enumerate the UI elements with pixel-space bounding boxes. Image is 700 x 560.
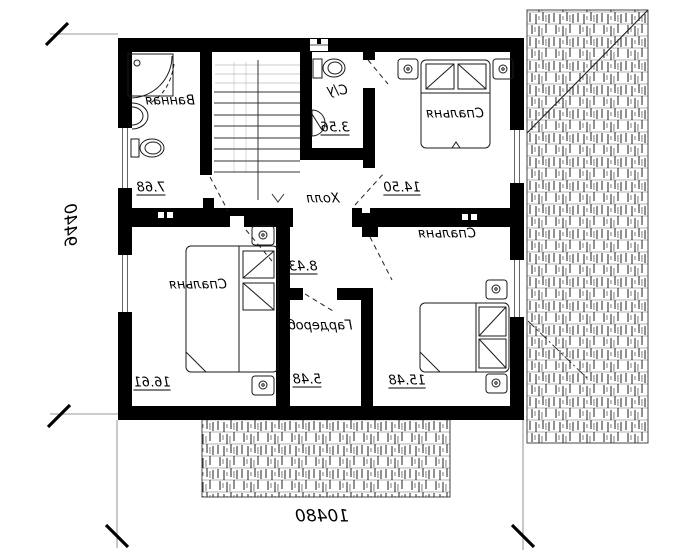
- window-wc-small: [310, 39, 328, 51]
- dimension-vertical: 9440: [61, 203, 78, 246]
- floor-plan-drawing: [0, 0, 700, 560]
- dimension-tick: [48, 405, 70, 427]
- room-area-bedroom-right: 15.48: [388, 375, 425, 388]
- double-bed: [421, 60, 490, 148]
- double-bed: [420, 303, 509, 372]
- window-bedroom-right: [510, 260, 524, 317]
- door-swing-bedroom-top: [355, 172, 385, 205]
- toilet: [131, 139, 164, 157]
- nightstand: [252, 376, 274, 395]
- window-bedroom-top: [510, 130, 524, 183]
- room-area-wardrobe: 5.48: [293, 374, 322, 387]
- double-bed: [186, 246, 278, 372]
- room-area-hall: 8.43: [289, 261, 318, 274]
- room-label-hall: Холл: [306, 193, 339, 206]
- door-notch-bedroom-top: [362, 208, 370, 213]
- door-swing-bedroom-right: [370, 237, 392, 280]
- nightstand: [398, 59, 418, 79]
- windows: [118, 39, 524, 317]
- room-area-bedroom-top: 14.50: [383, 182, 420, 195]
- bed-bedroom-top: [398, 59, 513, 148]
- window-bedroom-left: [118, 255, 132, 312]
- door-swing-wardrobe: [305, 294, 333, 311]
- stair-direction-arrow: [272, 194, 284, 202]
- wall-vent-marker: [462, 214, 468, 220]
- room-area-bedroom-left: 16.61: [133, 377, 170, 390]
- door-swing-wc: [368, 60, 388, 84]
- wall-vent-marker: [158, 212, 164, 218]
- roof-hatch-bottom: [202, 419, 450, 497]
- bed-bedroom-right: [420, 280, 509, 393]
- room-label-bedroom-right: Спальня: [418, 228, 476, 241]
- floor-plan: Ванная 7.68 С/у 3.56 Спальня 14.50 Холл …: [0, 0, 700, 560]
- room-label-bathroom: Ванная: [145, 95, 195, 108]
- dimension-horizontal: 10480: [295, 509, 349, 526]
- toilet: [313, 59, 345, 78]
- roof-hatch-right: [527, 10, 648, 443]
- nightstand: [252, 226, 274, 245]
- room-label-bedroom-top: Спальня: [426, 108, 484, 121]
- bed-bedroom-left: [186, 226, 278, 395]
- wall-vent-marker: [471, 214, 477, 220]
- room-area-wc: 3.56: [321, 122, 350, 135]
- door-notch-bedroom-left: [230, 216, 244, 227]
- window-bathroom: [118, 128, 132, 188]
- room-label-wc: С/у: [326, 85, 347, 98]
- room-area-bathroom: 7.68: [137, 182, 166, 195]
- staircase: [214, 60, 300, 202]
- wall-vent-marker: [167, 212, 173, 218]
- room-label-bedroom-left: Спальня: [169, 279, 227, 292]
- room-label-wardrobe: Гардероб: [288, 320, 353, 333]
